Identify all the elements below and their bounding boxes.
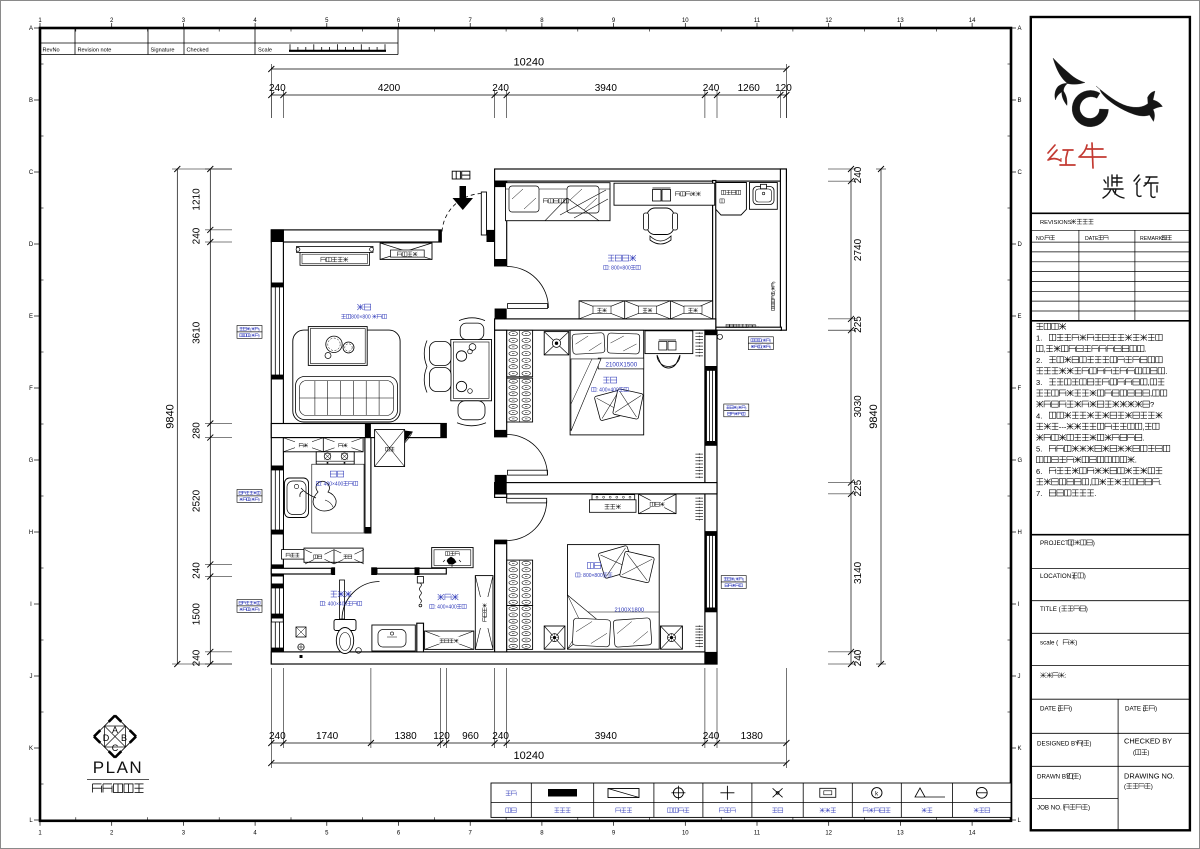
svg-text:C: C [1018, 170, 1023, 176]
svg-text:?: ? [1150, 400, 1154, 409]
svg-text:JOB NO. (: JOB NO. ( [1037, 805, 1066, 812]
svg-text:1380: 1380 [741, 731, 764, 742]
svg-text:): ) [743, 577, 744, 581]
svg-text:): ) [1147, 750, 1149, 757]
svg-text:240: 240 [703, 731, 720, 742]
svg-text:): ) [1088, 805, 1090, 812]
svg-text:,: , [1142, 422, 1144, 431]
svg-text:A: A [112, 725, 118, 735]
svg-text:240: 240 [492, 731, 509, 742]
svg-text:C: C [112, 743, 119, 753]
svg-text:F: F [29, 386, 33, 392]
svg-text:H: H [1018, 530, 1022, 536]
svg-text:DRAWING NO.: DRAWING NO. [1124, 772, 1175, 781]
svg-text:2740: 2740 [853, 238, 864, 261]
svg-text:: 800×800: : 800×800 [580, 573, 603, 579]
svg-text::: : [1065, 673, 1067, 680]
svg-text:3140: 3140 [853, 561, 864, 584]
svg-text:J: J [1018, 674, 1021, 680]
svg-text:120: 120 [433, 731, 450, 742]
svg-text:225: 225 [853, 479, 864, 496]
svg-text:): ) [745, 406, 746, 410]
svg-text:): ) [1089, 741, 1091, 748]
svg-text:1740: 1740 [316, 731, 339, 742]
svg-text:6.: 6. [1036, 467, 1042, 476]
svg-text:): ) [259, 498, 260, 502]
svg-text:): ) [770, 345, 771, 349]
svg-text:A: A [1018, 26, 1022, 32]
svg-text:PLAN: PLAN [93, 758, 143, 777]
svg-text:1380: 1380 [395, 731, 418, 742]
svg-text:Checked: Checked [187, 48, 209, 54]
svg-text:C: C [29, 170, 34, 176]
svg-text:: 400×400: : 400×400 [325, 602, 348, 608]
svg-text:Signature: Signature [151, 48, 175, 54]
svg-text:960: 960 [462, 731, 479, 742]
svg-text:B: B [29, 98, 33, 104]
svg-text:14: 14 [969, 831, 976, 837]
svg-text:): ) [1151, 784, 1153, 791]
svg-text:3030: 3030 [853, 395, 864, 418]
svg-text:K: K [1018, 746, 1022, 752]
svg-text:DESIGNED BY (: DESIGNED BY ( [1037, 741, 1084, 748]
svg-text:240: 240 [269, 731, 286, 742]
svg-text:2100X1500: 2100X1500 [606, 361, 638, 368]
svg-text:,: , [1150, 389, 1152, 398]
svg-text:280: 280 [192, 422, 203, 439]
svg-text:5.: 5. [1036, 445, 1042, 454]
svg-text:: 400×400: : 400×400 [596, 388, 619, 394]
svg-text:.: . [1142, 434, 1144, 443]
svg-text:): ) [1093, 540, 1095, 547]
svg-text:A: A [29, 26, 33, 32]
svg-text:TITLE (: TITLE ( [1040, 606, 1062, 613]
svg-text:4200: 4200 [378, 83, 401, 94]
svg-text:---: --- [1059, 422, 1067, 431]
svg-text:): ) [1075, 640, 1077, 647]
svg-text:,: , [1044, 345, 1046, 354]
svg-text:3610: 3610 [192, 321, 203, 344]
svg-text:.: . [1094, 489, 1096, 498]
svg-text:.: . [1160, 478, 1162, 487]
svg-text:12: 12 [825, 831, 832, 837]
svg-text:1.: 1. [1036, 334, 1042, 343]
svg-text:B: B [121, 733, 127, 743]
svg-text:10: 10 [682, 831, 689, 837]
svg-text:scale (: scale ( [1040, 640, 1059, 647]
svg-text:1210: 1210 [192, 188, 203, 211]
svg-text:3940: 3940 [595, 83, 618, 94]
svg-text:240: 240 [703, 83, 720, 94]
svg-text:9840: 9840 [165, 404, 177, 428]
svg-text:: 800×800: : 800×800 [608, 266, 631, 272]
svg-text:DRAWN BY (: DRAWN BY ( [1037, 774, 1075, 781]
svg-text:NO.: NO. [1036, 236, 1045, 242]
svg-text:E: E [29, 314, 33, 320]
svg-text:9840: 9840 [868, 404, 880, 428]
svg-text:REVISIONS: REVISIONS [1040, 220, 1072, 226]
svg-text:,: , [1089, 478, 1091, 487]
svg-text:): ) [259, 608, 260, 612]
svg-text:7.: 7. [1036, 489, 1042, 498]
svg-text:240: 240 [269, 83, 286, 94]
svg-text:): ) [1086, 606, 1088, 613]
svg-text:10240: 10240 [514, 750, 545, 762]
svg-text:): ) [259, 334, 260, 338]
svg-text:3.: 3. [1036, 378, 1042, 387]
svg-text:DATE (: DATE ( [1040, 706, 1061, 713]
svg-text:F: F [1018, 386, 1022, 392]
svg-text:,: , [1148, 378, 1150, 387]
svg-text:): ) [1155, 706, 1157, 713]
svg-text:1260: 1260 [738, 83, 761, 94]
svg-text:D: D [29, 242, 34, 248]
svg-text:.: . [1165, 367, 1167, 376]
svg-text:13: 13 [897, 831, 904, 837]
svg-text:Revision note: Revision note [78, 48, 112, 54]
svg-text:800×800: 800×800 [351, 315, 371, 321]
svg-text:: 400×400: : 400×400 [434, 605, 457, 611]
svg-text:: 400×400: : 400×400 [321, 482, 344, 488]
svg-text:240: 240 [853, 166, 864, 183]
svg-text:): ) [1079, 774, 1081, 781]
svg-text:D: D [103, 733, 110, 743]
svg-text:225: 225 [853, 316, 864, 333]
svg-text:3940: 3940 [595, 731, 618, 742]
svg-text:1500: 1500 [192, 603, 203, 626]
svg-text:K: K [29, 746, 33, 752]
svg-text:.: . [1145, 345, 1147, 354]
svg-text:10240: 10240 [514, 57, 545, 69]
svg-text:240: 240 [192, 649, 203, 666]
svg-text:240: 240 [192, 562, 203, 579]
svg-text:240: 240 [192, 227, 203, 244]
svg-text:): ) [770, 339, 771, 343]
svg-text:2.: 2. [1036, 356, 1042, 365]
svg-text:240: 240 [853, 649, 864, 666]
svg-text:2100X1800: 2100X1800 [615, 608, 645, 614]
svg-text:D: D [1018, 242, 1023, 248]
svg-text:CHECKED BY: CHECKED BY [1124, 737, 1172, 746]
svg-text:RevNo: RevNo [43, 48, 60, 54]
svg-text:2520: 2520 [192, 489, 203, 512]
svg-text:J: J [30, 674, 33, 680]
svg-text:B: B [1018, 98, 1022, 104]
svg-text:.: . [1135, 456, 1137, 465]
svg-text:): ) [1070, 706, 1072, 713]
svg-text:): ) [1084, 573, 1086, 580]
svg-text:4.: 4. [1036, 411, 1042, 420]
svg-text:H: H [29, 530, 33, 536]
svg-text:Scale: Scale [258, 48, 272, 54]
svg-text:120: 120 [775, 83, 792, 94]
svg-text:LOCATION (: LOCATION ( [1040, 573, 1076, 580]
svg-text:DATE (: DATE ( [1125, 706, 1146, 713]
svg-text:): ) [259, 327, 260, 331]
svg-text:G: G [1018, 458, 1023, 464]
svg-text:11: 11 [754, 831, 761, 837]
svg-text:E: E [1018, 314, 1022, 320]
svg-text:→: → [756, 325, 760, 329]
svg-text:240: 240 [492, 83, 509, 94]
svg-text:DATE: DATE [1085, 236, 1099, 242]
svg-text:G: G [29, 458, 34, 464]
